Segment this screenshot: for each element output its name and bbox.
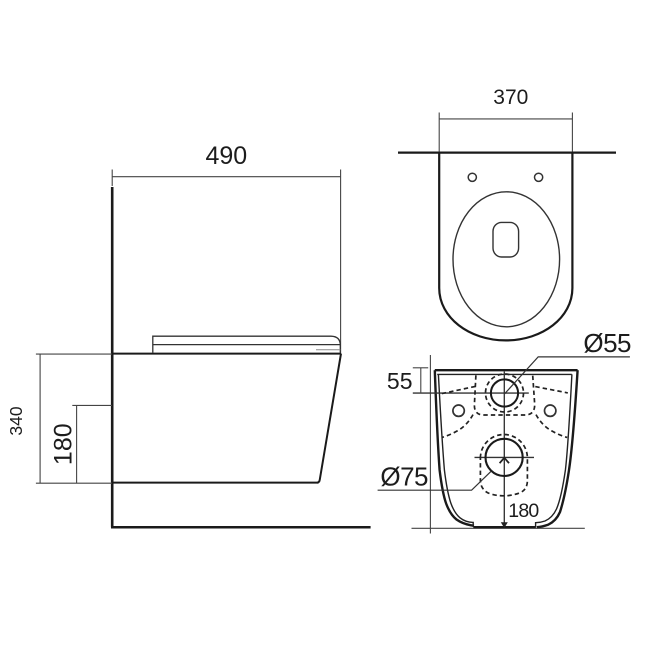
svg-text:55: 55 [387, 368, 413, 394]
svg-text:180: 180 [50, 423, 78, 465]
svg-text:180: 180 [508, 500, 539, 522]
svg-text:370: 370 [493, 86, 528, 109]
svg-text:Ø55: Ø55 [583, 328, 631, 358]
svg-text:Ø75: Ø75 [380, 461, 428, 491]
svg-text:490: 490 [205, 142, 247, 170]
svg-text:340: 340 [6, 406, 26, 435]
